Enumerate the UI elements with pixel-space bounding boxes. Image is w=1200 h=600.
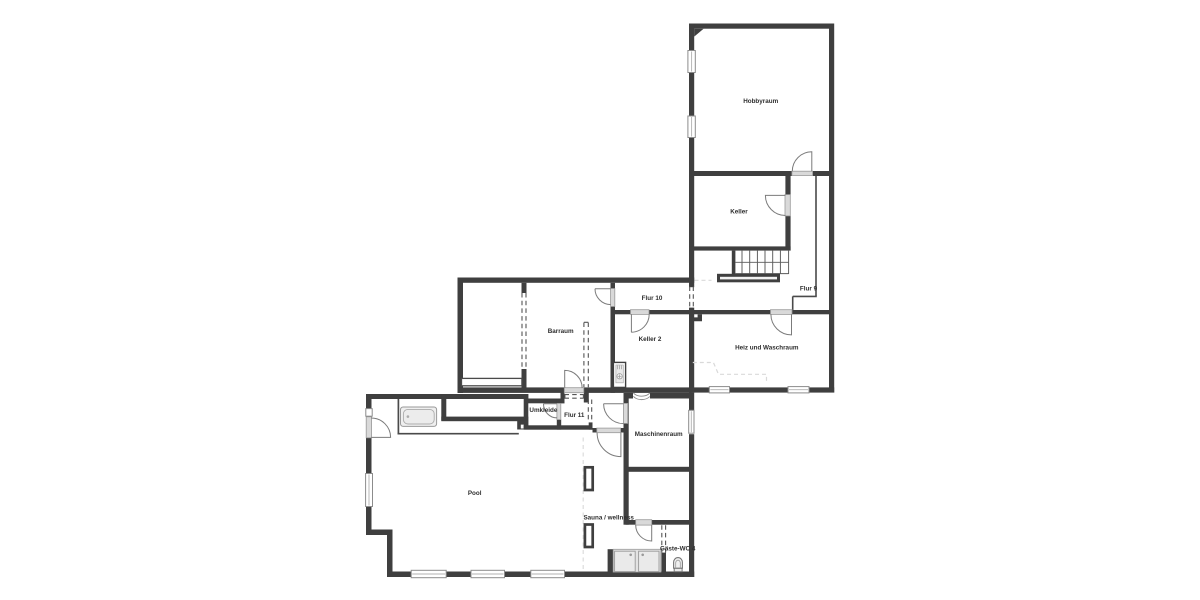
- svg-text:Barraum: Barraum: [548, 328, 574, 335]
- svg-text:Flur 9: Flur 9: [800, 286, 818, 293]
- svg-text:Maschinenraum: Maschinenraum: [635, 431, 683, 438]
- svg-text:Keller 2: Keller 2: [639, 336, 662, 343]
- svg-text:Sauna / wellness: Sauna / wellness: [583, 515, 634, 522]
- svg-text:Heiz und Waschraum: Heiz und Waschraum: [735, 345, 799, 352]
- svg-text:Hobbyraum: Hobbyraum: [743, 98, 778, 105]
- svg-text:Umkleide: Umkleide: [529, 407, 557, 414]
- svg-text:Gäste-WC 4: Gäste-WC 4: [660, 546, 696, 553]
- svg-text:Flur 10: Flur 10: [642, 295, 663, 302]
- svg-text:Keller: Keller: [730, 208, 748, 215]
- svg-text:Flur 11: Flur 11: [564, 412, 585, 419]
- svg-text:Pool: Pool: [468, 490, 482, 497]
